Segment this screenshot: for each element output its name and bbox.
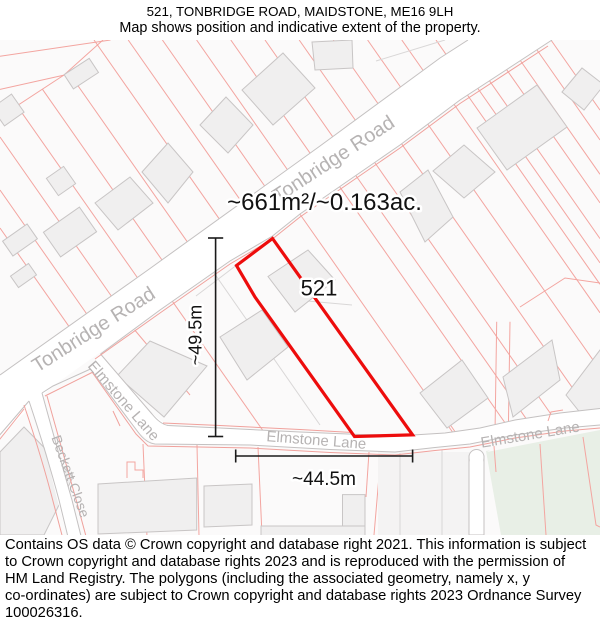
svg-text:521: 521 <box>301 276 338 301</box>
svg-text:~661m²/~0.163ac.: ~661m²/~0.163ac. <box>227 189 422 216</box>
svg-text:~49.5m: ~49.5m <box>186 305 206 366</box>
svg-text:~44.5m: ~44.5m <box>292 469 356 490</box>
